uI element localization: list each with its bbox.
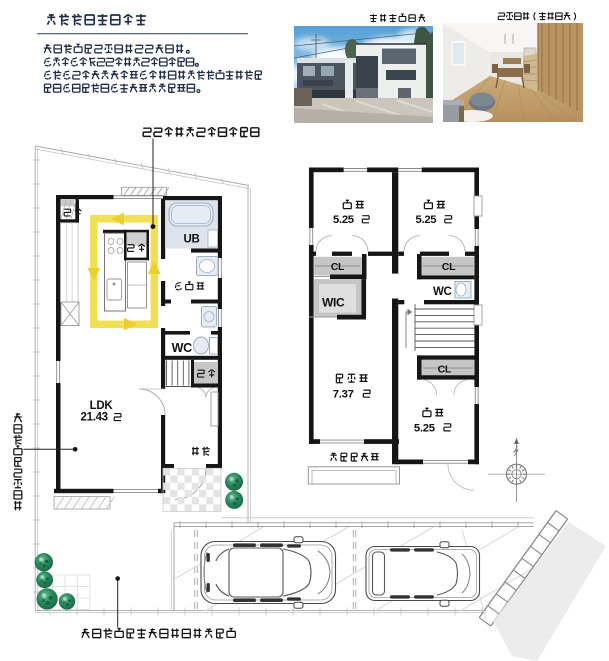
svg-text:CL: CL — [442, 261, 456, 273]
svg-text:5.25: 5.25 — [333, 214, 354, 226]
svg-text:CL: CL — [331, 261, 345, 273]
svg-text:WC: WC — [172, 341, 192, 355]
svg-text:UB: UB — [183, 233, 199, 245]
svg-text:WIC: WIC — [322, 296, 345, 310]
svg-text:WC: WC — [433, 286, 452, 298]
svg-text:5.25: 5.25 — [414, 422, 435, 434]
svg-text:21.43: 21.43 — [81, 412, 108, 424]
svg-text:7.37: 7.37 — [333, 389, 354, 401]
svg-text:CL: CL — [438, 363, 452, 375]
svg-text:5.25: 5.25 — [416, 214, 437, 226]
svg-text:LDK: LDK — [90, 400, 114, 412]
